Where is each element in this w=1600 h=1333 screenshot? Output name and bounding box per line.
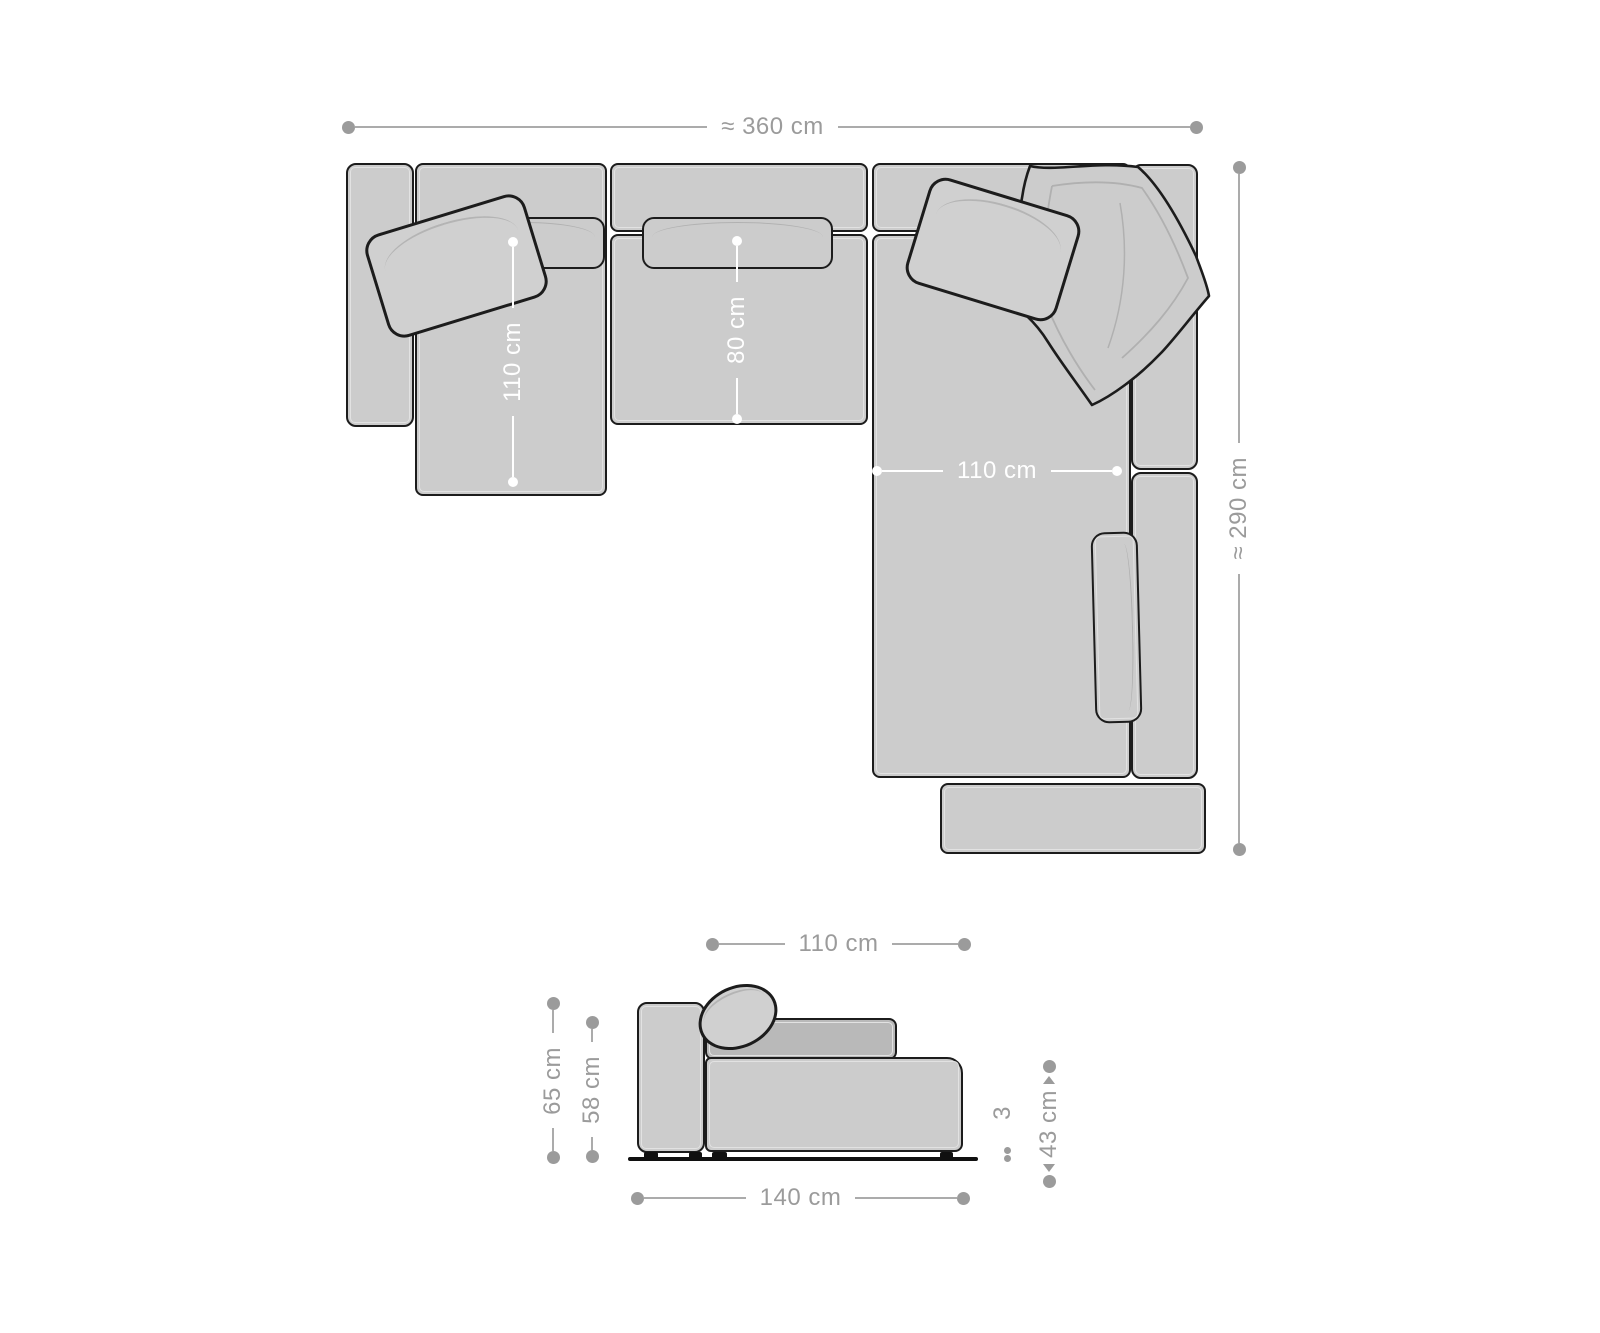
dim-dot [1043,1060,1056,1073]
dim-dot [1004,1147,1011,1154]
dim-label: 110 cm [785,932,893,956]
dim-line [644,1197,746,1199]
dim-line [552,1010,554,1033]
dim-dot [586,1150,599,1163]
side-back-panel [637,1002,705,1153]
dim-seat-width-side: 110 cm [706,937,971,951]
side-seat-body [705,1057,963,1152]
dim-label: 43 cm [1037,1084,1061,1164]
dim-seat-height: 43 cm [1042,1060,1056,1166]
dim-total-height: 65 cm [546,997,560,1164]
dim-total-depth: 140 cm [631,1191,970,1205]
dim-dot [706,938,719,951]
dim-dot [547,1151,560,1164]
dim-line [892,943,958,945]
dim-line [855,1197,957,1199]
dim-dot [1004,1155,1011,1162]
dim-line [719,943,785,945]
dim-label: 65 cm [541,1033,565,1129]
dim-line [552,1128,554,1151]
arrow-down-icon [1043,1164,1055,1172]
arrow-up-icon [1043,1076,1055,1084]
floor-line [628,1157,978,1161]
dim-label: 140 cm [746,1186,856,1210]
dim-label: 3 [991,1106,1015,1120]
sofa-dimension-diagram: ≈ 360 cm ≈ 290 cm 110 cm 80 cm [0,0,1600,1333]
side-view: 110 cm 65 cm 58 cm [0,0,1600,1333]
dim-line [591,1137,593,1150]
dim-dot [586,1016,599,1029]
dim-back-cushion-height: 58 cm [585,1016,599,1163]
dim-dot [957,1192,970,1205]
dim-dot [547,997,560,1010]
dim-label: 58 cm [580,1042,604,1138]
dim-dot [958,938,971,951]
dim-dot [1043,1175,1056,1188]
dim-line [591,1029,593,1042]
dim-dot [631,1192,644,1205]
